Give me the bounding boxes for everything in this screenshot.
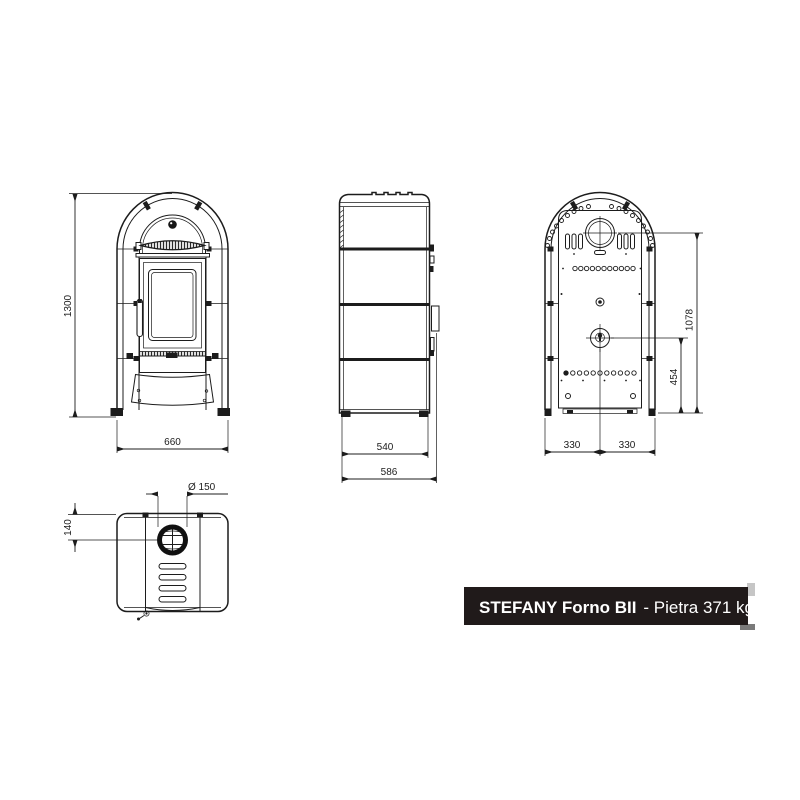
lower-hole-row [561, 371, 641, 382]
latch [137, 611, 149, 621]
center-rivet [596, 298, 604, 306]
dim-label-330-right: 330 [619, 440, 636, 451]
dim-label-diameter-150: Ø 150 [188, 482, 216, 493]
air-knob [168, 220, 177, 229]
tile-joint-3 [340, 358, 430, 361]
tile-joint-2 [340, 303, 430, 306]
top-vent-slots [159, 564, 186, 603]
dim-label-330-left: 330 [564, 440, 581, 451]
dimension-rear-half-widths: 330 330 [545, 349, 655, 457]
dimension-total-depth: 586 [342, 333, 437, 483]
dimension-flue-offset: 140 [63, 503, 157, 552]
product-variant: - Pietra 371 kg [643, 598, 754, 617]
rear-outlet [586, 324, 614, 352]
product-name: STEFANY Forno BII [479, 598, 636, 617]
warming-shelf [136, 241, 210, 257]
side-foot-front [341, 411, 351, 418]
dim-label-1300: 1300 [63, 294, 74, 317]
dim-label-1078: 1078 [685, 308, 696, 331]
front-foot-right [218, 408, 231, 416]
drawer-handle [166, 353, 178, 359]
side-view [340, 193, 440, 418]
side-door-handle [432, 306, 440, 331]
dim-label-540: 540 [377, 442, 394, 453]
label-shadow-top [747, 583, 755, 596]
product-label-box: STEFANY Forno BII- Pietra 371 kg [464, 583, 755, 630]
flue-pipe-top [157, 525, 188, 556]
fire-door [137, 259, 206, 353]
dim-label-454: 454 [669, 368, 680, 385]
pedestal [132, 375, 214, 406]
side-fittings [429, 245, 439, 357]
dim-label-140: 140 [63, 519, 74, 536]
dim-label-586: 586 [381, 467, 398, 478]
side-foot-back [419, 411, 429, 418]
front-view [111, 193, 231, 417]
ash-drawer [127, 352, 219, 373]
arch-notch-left [143, 201, 151, 211]
tile-joint-1 [340, 248, 430, 251]
stove-technical-drawing: 1300 660 [0, 0, 800, 800]
arch-notch-right [194, 201, 202, 211]
top-view [117, 513, 228, 621]
upper-hole-row [562, 266, 641, 270]
dimension-overall-width: 660 [117, 420, 228, 453]
dimension-flue-diameter: Ø 150 [146, 482, 228, 527]
dim-label-660: 660 [164, 437, 181, 448]
dimension-flue-height: 1078 [618, 233, 703, 413]
front-foot-left [111, 408, 124, 416]
door-handle [137, 299, 143, 337]
product-label-text: STEFANY Forno BII- Pietra 371 kg [479, 598, 754, 617]
flue-outlet [583, 216, 617, 250]
